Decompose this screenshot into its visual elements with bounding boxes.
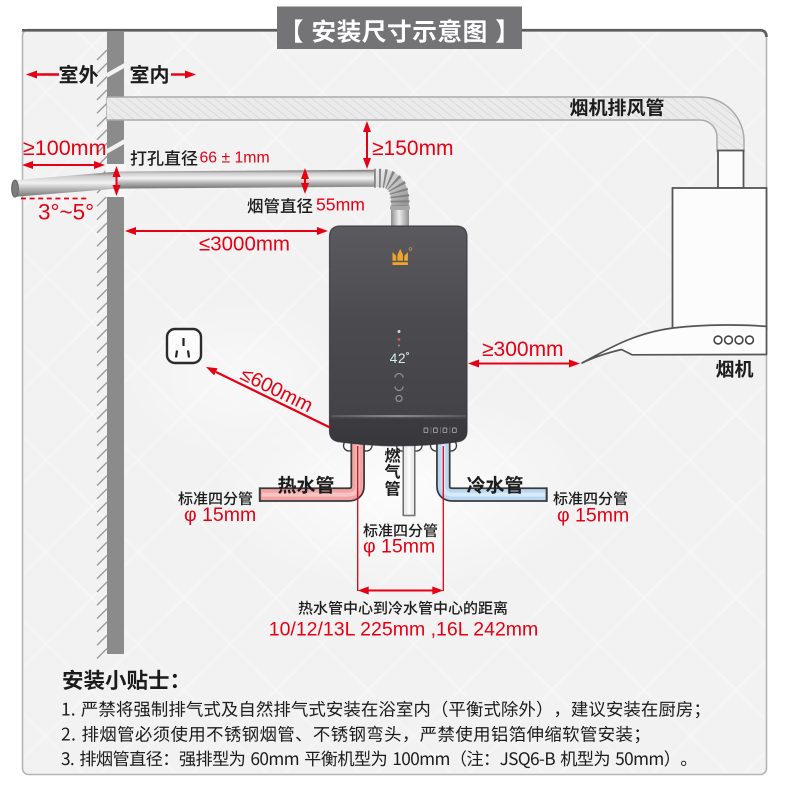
svg-text:≤3000mm: ≤3000mm (199, 233, 290, 256)
svg-text:≥300mm: ≥300mm (482, 338, 564, 361)
svg-text:10/12/13L 225mm ,16L 242mm: 10/12/13L 225mm ,16L 242mm (269, 619, 539, 641)
svg-text:≥150mm: ≥150mm (372, 137, 454, 160)
svg-text:42: 42 (390, 351, 407, 366)
svg-text:3°~5°: 3°~5° (38, 200, 94, 225)
svg-text:≥100mm: ≥100mm (23, 136, 107, 160)
svg-text:φ 15mm: φ 15mm (184, 504, 256, 526)
svg-text:66 ± 1mm: 66 ± 1mm (200, 150, 270, 167)
svg-text:φ 15mm: φ 15mm (557, 505, 629, 527)
svg-text:55mm: 55mm (316, 195, 365, 215)
svg-text:φ 15mm: φ 15mm (363, 536, 435, 558)
